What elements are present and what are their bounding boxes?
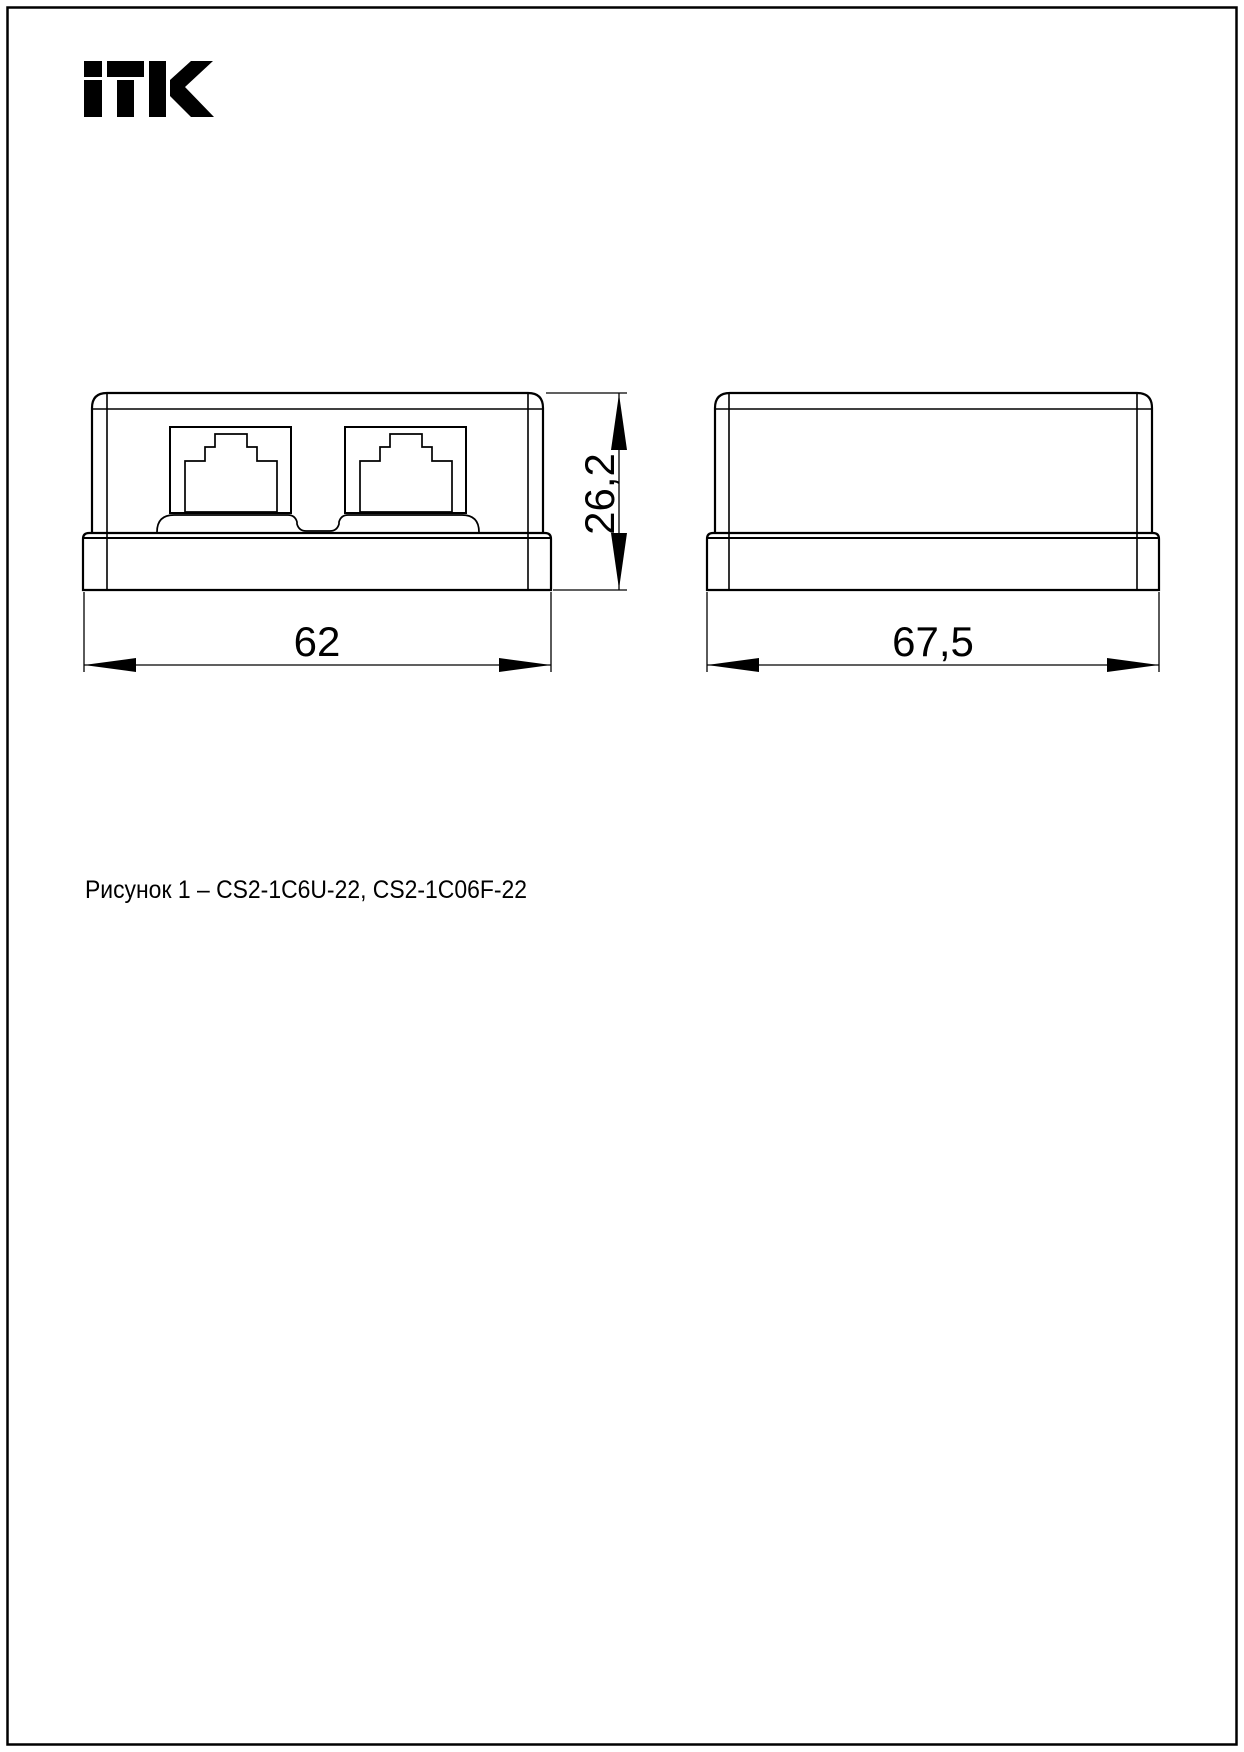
- logo-t-stem: [117, 80, 134, 117]
- technical-drawing-canvas: ITK: [0, 0, 1244, 1752]
- figure-caption: Рисунок 1 – CS2-1C6U-22, CS2-1C06F-22: [85, 876, 527, 904]
- drawing-page: ITK: [0, 0, 1244, 1752]
- front-view: [83, 393, 551, 590]
- rj45-port-opening-right: [345, 427, 466, 513]
- logo-t-bar: [107, 61, 144, 77]
- logo-i-dot: [84, 61, 102, 77]
- side-base-plate: [707, 533, 1159, 590]
- arrowhead-down-icon: [611, 533, 627, 589]
- dimension-front-width: 62: [84, 592, 551, 672]
- arrowhead-right-icon: [499, 658, 551, 672]
- dimension-value-front-height: 26,2: [576, 453, 623, 535]
- front-bezel-bottom-edge: [157, 515, 479, 532]
- arrowhead-left-icon: [84, 658, 136, 672]
- logo-i-stem: [84, 80, 102, 117]
- logo-k-stem: [149, 61, 166, 117]
- side-view: [707, 393, 1159, 590]
- rj45-jack-profile-right: [360, 434, 452, 512]
- dimension-side-width: 67,5: [707, 592, 1159, 672]
- side-body-outline: [715, 393, 1152, 533]
- dimension-value-side-width: 67,5: [892, 618, 974, 665]
- rj45-jack-profile-left: [185, 434, 277, 512]
- front-body-outline: [92, 393, 543, 533]
- itk-logo: ITK: [84, 61, 214, 117]
- dimension-value-front-width: 62: [294, 618, 341, 665]
- rj45-port-opening-left: [170, 427, 291, 513]
- logo-k-arms: [170, 61, 214, 117]
- arrowhead-left-icon: [707, 658, 759, 672]
- front-base-plate: [83, 533, 551, 590]
- arrowhead-right-icon: [1107, 658, 1159, 672]
- dimension-front-height: 26,2: [546, 393, 627, 590]
- arrowhead-up-icon: [611, 394, 627, 450]
